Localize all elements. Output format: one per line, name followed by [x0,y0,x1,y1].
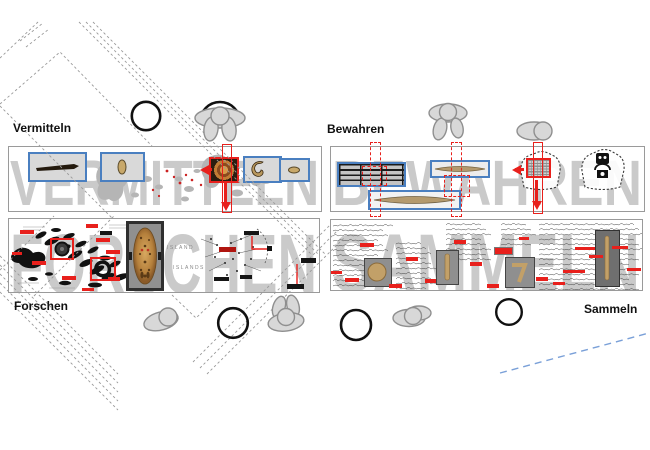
circle-marker [494,297,524,327]
site-boundary-line [500,333,649,373]
arrow-down-icon [532,201,542,215]
circle-marker [339,308,373,342]
framed-shield-image [126,221,164,291]
arrow-down-shaft [224,182,227,203]
person-figure [516,118,558,144]
label-sammeln: Sammeln [584,302,637,316]
collection-box-club [436,250,459,285]
map-label-island: ISLAND [167,245,194,251]
collection-box-boomerang [505,257,535,288]
exhibition-diagram: VERMITTELN BEWAHREN FORSCH [0,0,650,450]
highlighted-find-box [50,238,74,260]
arrow-down-icon [221,202,231,216]
dashed-highlight-rect [362,166,387,186]
circle-marker [129,99,163,133]
dashed-highlight-rect [444,175,470,197]
artifact-box-fishhook [243,156,282,183]
cloak-outline [576,145,630,193]
person-figure [428,99,472,143]
artifact-box-bead [279,158,310,182]
person-figure [142,304,186,336]
arrow-left-icon [195,165,209,175]
label-vermitteln: Vermitteln [13,121,71,135]
label-bewahren: Bewahren [327,122,384,136]
arrow-down-shaft [535,180,538,202]
annotation-connectors [252,236,297,285]
idol-icon [595,153,610,178]
framed-redaction-bar [494,247,513,255]
person-figure [194,90,248,144]
arrow-left-icon [507,165,521,175]
collection-box-staff [595,230,620,287]
label-forschen: Forschen [14,299,68,313]
person-figure [392,302,436,332]
artifact-box-club [28,152,87,182]
artifact-box-seed [100,152,145,182]
map-label-islands: ISLANDS [173,265,205,271]
circle-marker [216,306,250,340]
collection-box-bowl [364,258,392,287]
person-figure [266,294,310,336]
